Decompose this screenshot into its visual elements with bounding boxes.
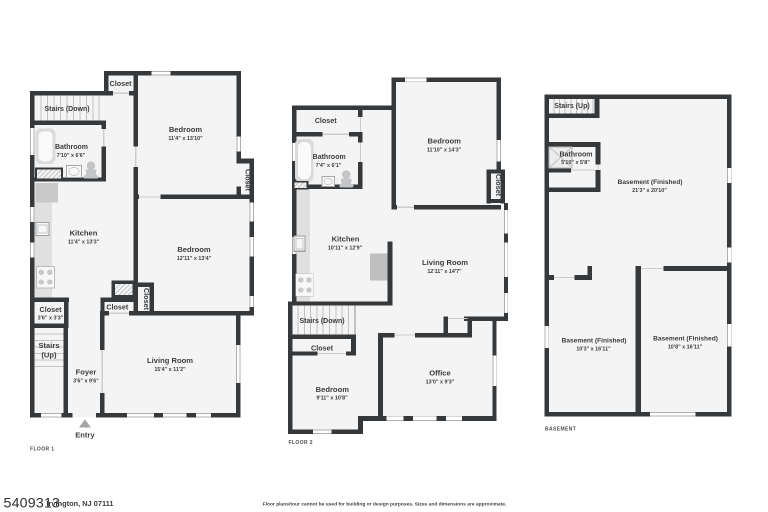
svg-text:Bathroom: Bathroom bbox=[559, 152, 592, 159]
svg-text:10'3" x 16'11": 10'3" x 16'11" bbox=[576, 347, 611, 353]
svg-text:Closet: Closet bbox=[494, 174, 503, 197]
svg-text:Closet: Closet bbox=[244, 169, 253, 192]
svg-text:Kitchen: Kitchen bbox=[70, 229, 98, 238]
svg-text:12'11" x 13'4": 12'11" x 13'4" bbox=[177, 256, 212, 262]
svg-text:Stairs (Down): Stairs (Down) bbox=[299, 318, 344, 325]
svg-text:5409313: 5409313 bbox=[4, 496, 61, 512]
svg-text:9'11" x 10'8": 9'11" x 10'8" bbox=[316, 396, 348, 402]
svg-text:11'4" x 13'10": 11'4" x 13'10" bbox=[168, 136, 203, 142]
svg-text:Living Room: Living Room bbox=[422, 258, 468, 267]
svg-text:7'4" x 6'1": 7'4" x 6'1" bbox=[316, 163, 342, 169]
svg-text:FLOOR 1: FLOOR 1 bbox=[30, 446, 54, 452]
svg-text:Stairs (Up): Stairs (Up) bbox=[554, 103, 589, 110]
svg-text:(Up): (Up) bbox=[41, 351, 57, 360]
svg-text:21'3" x 20'10": 21'3" x 20'10" bbox=[632, 188, 667, 194]
svg-text:Kitchen: Kitchen bbox=[332, 235, 360, 244]
svg-text:Bedroom: Bedroom bbox=[316, 385, 350, 394]
svg-text:3'6" x 3'3": 3'6" x 3'3" bbox=[38, 316, 64, 322]
svg-text:Bedroom: Bedroom bbox=[428, 137, 462, 146]
svg-text:5'10" x 5'8": 5'10" x 5'8" bbox=[561, 160, 590, 166]
svg-text:Office: Office bbox=[429, 369, 451, 378]
svg-text:Stairs: Stairs bbox=[38, 341, 59, 350]
svg-text:Basement (Finished): Basement (Finished) bbox=[562, 338, 627, 345]
svg-text:Closet: Closet bbox=[142, 288, 151, 311]
svg-text:Bedroom: Bedroom bbox=[169, 125, 203, 134]
svg-text:7'10" x 6'6": 7'10" x 6'6" bbox=[57, 153, 86, 159]
svg-text:15'4" x 11'2": 15'4" x 11'2" bbox=[154, 367, 186, 373]
svg-text:BASEMENT: BASEMENT bbox=[545, 427, 576, 433]
svg-text:Closet: Closet bbox=[315, 116, 338, 125]
svg-text:11'10" x 14'3": 11'10" x 14'3" bbox=[427, 148, 462, 154]
svg-text:Living Room: Living Room bbox=[147, 356, 193, 365]
svg-text:3'6" x 9'6": 3'6" x 9'6" bbox=[73, 379, 99, 385]
svg-text:12'11" x 14'7": 12'11" x 14'7" bbox=[427, 269, 462, 275]
svg-text:Bathroom: Bathroom bbox=[55, 144, 88, 151]
svg-text:Basement (Finished): Basement (Finished) bbox=[618, 179, 683, 186]
svg-text:Basement (Finished): Basement (Finished) bbox=[653, 336, 718, 343]
svg-text:Floor plans/tour cannot be use: Floor plans/tour cannot be used for buil… bbox=[263, 501, 507, 507]
svg-text:Bathroom: Bathroom bbox=[313, 154, 346, 161]
svg-text:Closet: Closet bbox=[311, 344, 334, 353]
svg-text:Bedroom: Bedroom bbox=[177, 245, 211, 254]
svg-text:Closet: Closet bbox=[110, 79, 133, 88]
svg-text:Foyer: Foyer bbox=[76, 368, 97, 377]
svg-text:13'0" x 9'3": 13'0" x 9'3" bbox=[426, 380, 455, 386]
svg-text:Stairs (Down): Stairs (Down) bbox=[44, 106, 89, 113]
svg-text:10'8" x 16'11": 10'8" x 16'11" bbox=[668, 345, 703, 351]
svg-text:11'4" x 13'3": 11'4" x 13'3" bbox=[68, 240, 100, 246]
svg-text:Entry: Entry bbox=[75, 431, 95, 440]
svg-text:10'11" x 12'9": 10'11" x 12'9" bbox=[328, 246, 363, 252]
svg-text:FLOOR 2: FLOOR 2 bbox=[289, 440, 313, 446]
svg-text:Closet: Closet bbox=[106, 303, 129, 312]
svg-text:Closet: Closet bbox=[40, 305, 63, 314]
